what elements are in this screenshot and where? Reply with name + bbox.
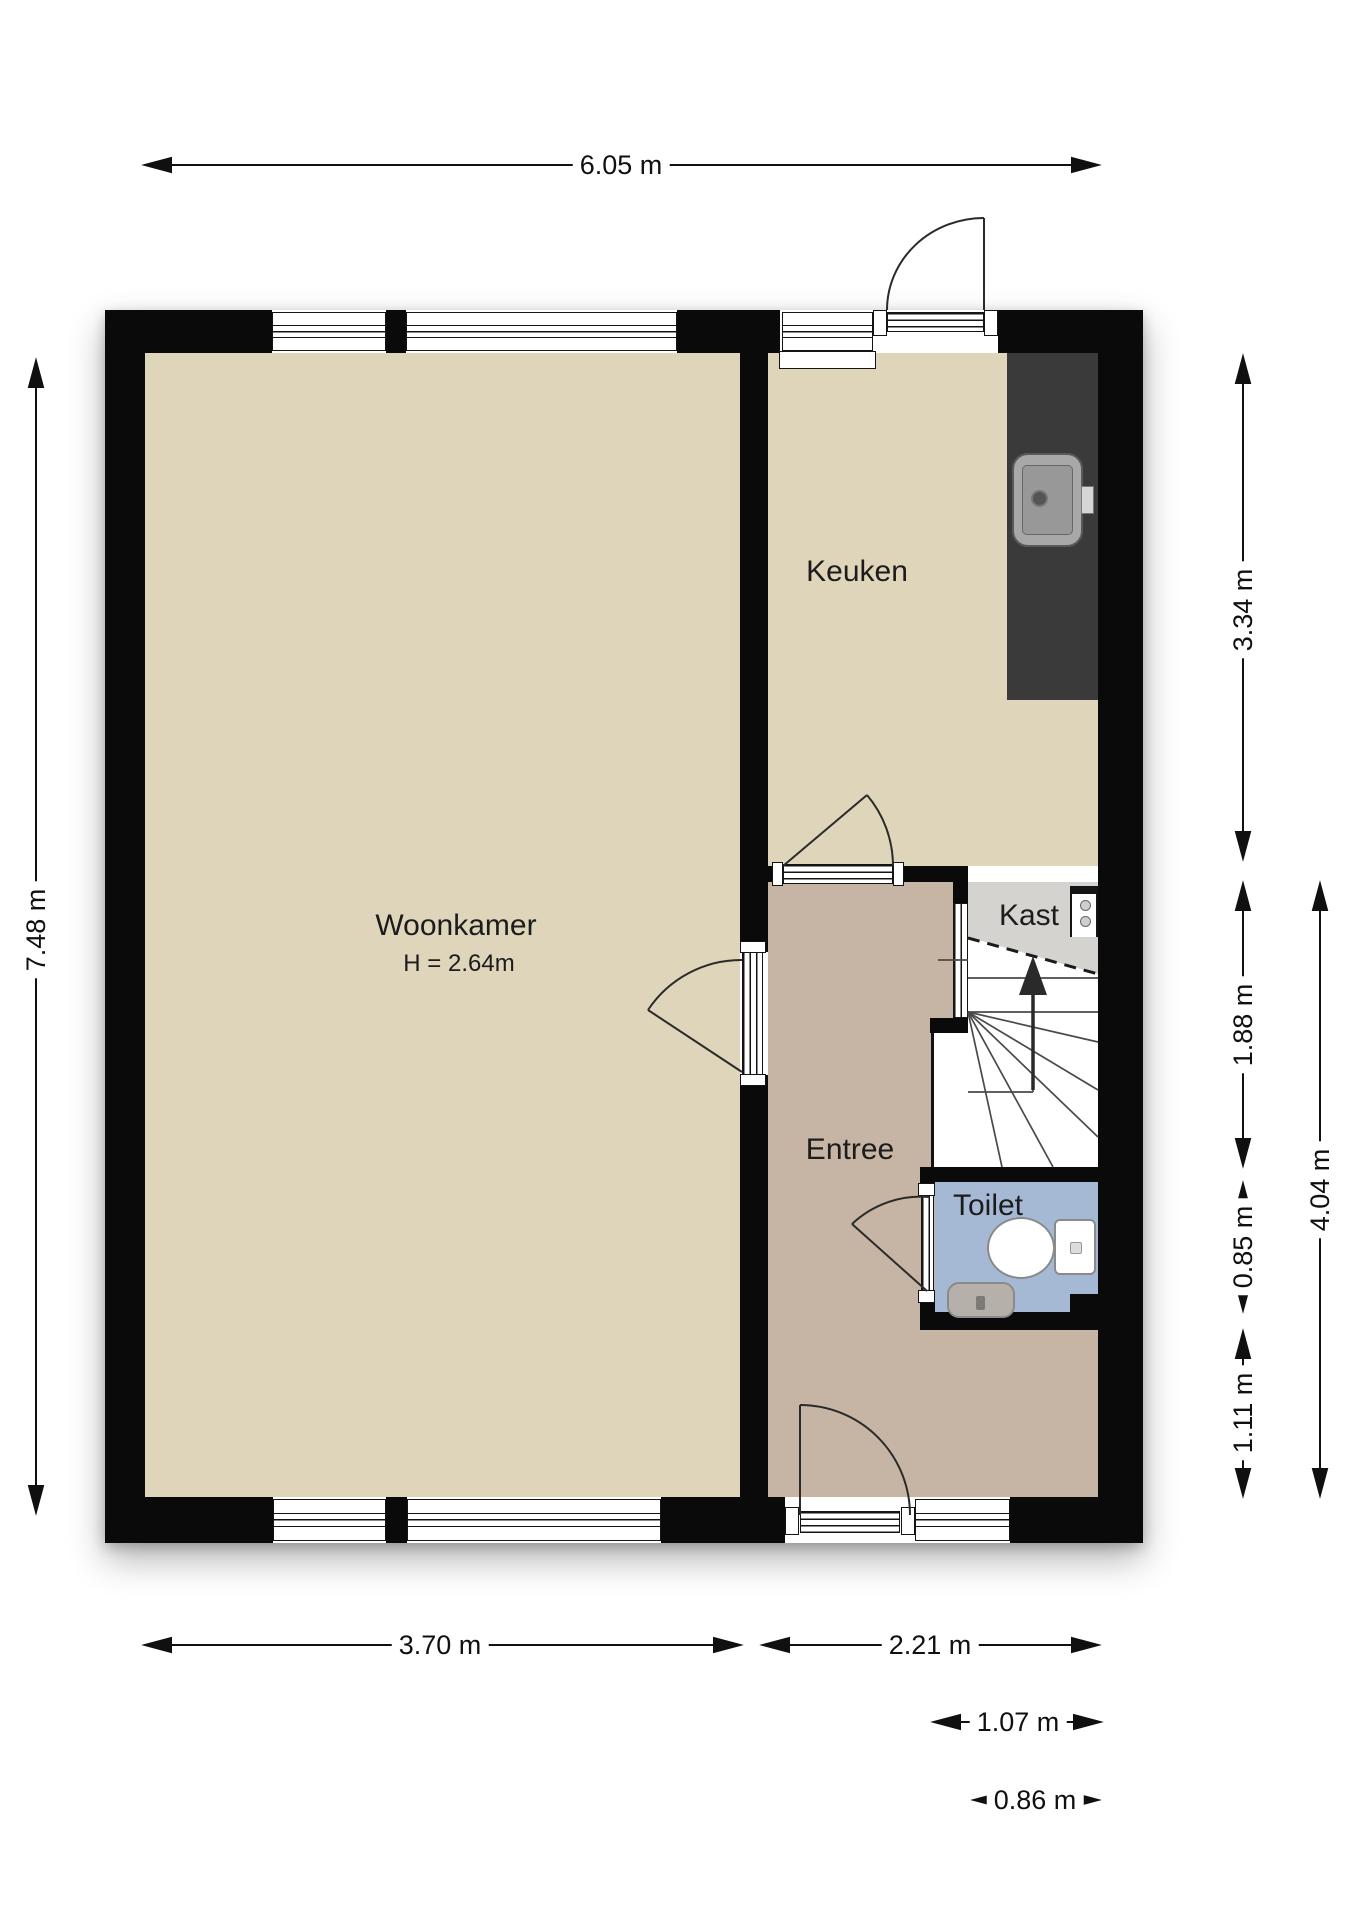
dim-bottom-livingroom: 3.70 m [392,1628,489,1662]
dim-top-width: 6.05 m [573,148,670,182]
stairs-up-arrow-icon [1019,956,1047,1090]
dim-right-toilet: 0.85 m [1226,1199,1260,1296]
entree-label: Entree [806,1133,894,1167]
dim-right-total: 4.04 m [1303,1142,1337,1239]
dim-right-lower: 1.11 m [1226,1366,1260,1461]
woonkamer-label: Woonkamer [375,909,536,943]
backdoor-swing [887,218,984,310]
dim-left-height: 7.48 m [19,882,53,979]
dim-right-kitchen: 3.34 m [1226,562,1260,659]
stair-treads [938,960,1098,1167]
woonkamer-door-swing [648,960,742,1072]
frontdoor-swing [800,1405,910,1515]
woonkamer-height-note: H = 2.64m [403,950,514,978]
plan-linework [0,0,1358,1920]
dim-bottom-door: 1.07 m [970,1705,1067,1739]
dim-right-hall: 1.88 m [1226,977,1260,1074]
floorplan-canvas: Woonkamer H = 2.64m Keuken Kast Entree T… [0,0,1358,1920]
keuken-door-swing [783,795,893,866]
toilet-door-swing [852,1197,929,1291]
dim-bottom-window: 0.86 m [987,1783,1084,1817]
dimension-lines [29,158,1327,1807]
dim-bottom-entree: 2.21 m [882,1628,979,1662]
toilet-label: Toilet [953,1189,1023,1223]
kast-label: Kast [999,899,1059,933]
keuken-label: Keuken [806,555,908,589]
